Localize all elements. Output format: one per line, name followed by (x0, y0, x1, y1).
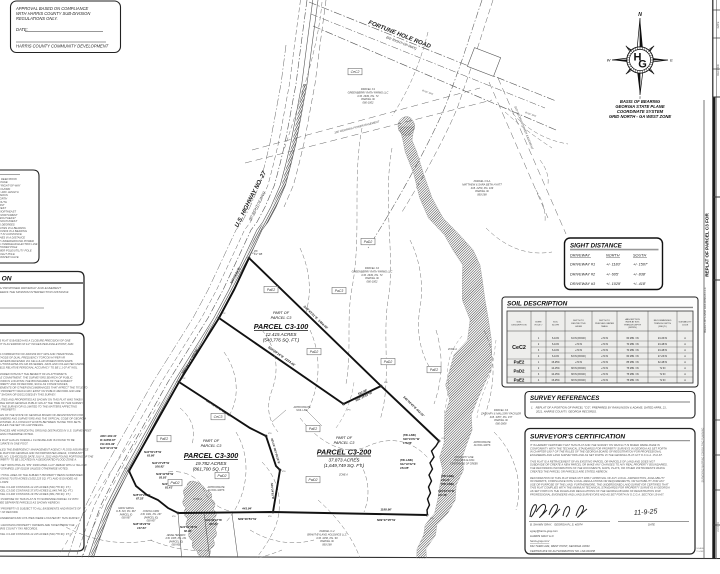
svg-text:DRIVEWAY #3: DRIVEWAY #3 (570, 282, 596, 286)
svg-text:D.B. 2250, PG. 109: D.B. 2250, PG. 109 (471, 186, 494, 190)
svg-text:+72 IN: +72 IN (575, 361, 582, 364)
svg-text:153.85': 153.85' (400, 466, 409, 470)
svg-text:(REQ'D): (REQ'D) (658, 326, 666, 328)
svg-text:CONTAINS 70.070 ACRES (3,052,2: CONTAINS 70.070 ACRES (3,052,225 SQ. FT.… (0, 476, 78, 480)
svg-text:CERTIFICATE OF AUTHORIZATION N: CERTIFICATE OF AUTHORIZATION NO. LSF-001… (530, 549, 596, 553)
svg-text:IPS: IPS (430, 518, 434, 520)
svg-text:THE PROPERTY IS SUBJECT TO ALL: THE PROPERTY IS SUBJECT TO ALL EASEMENTS… (0, 507, 81, 511)
svg-text:137.63': 137.63' (137, 526, 147, 530)
svg-text:D.B. 1939, PG. 72: D.B. 1939, PG. 72 (357, 94, 379, 98)
svg-text:+72 IN: +72 IN (601, 349, 608, 352)
svg-text:37.873 ACRES: 37.873 ACRES (329, 457, 361, 462)
svg-text:634 THIRD AVE, WEST POINT, GEO: 634 THIRD AVE, WEST POINT, GEORGIA 31833 (530, 544, 590, 548)
svg-text:TRENCH DEPTH: TRENCH DEPTH (624, 324, 642, 326)
svg-text:N34°34'31"W: N34°34'31"W (100, 446, 117, 450)
svg-text:THIS PLAT HAS AN OVERALL CLOSU: THIS PLAT HAS AN OVERALL CLOSURE AND IS … (0, 438, 75, 442)
svg-text:FOOT IN AN ERROR OF 1/2" INCHE: FOOT IN AN ERROR OF 1/2" INCHES PER ANGL… (0, 342, 73, 346)
svg-text:PARCEL C3-300: PARCEL C3-300 (184, 451, 238, 460)
svg-text:REPLAT OF PARCEL C3 FOR: REPLAT OF PARCEL C3 FOR (705, 213, 710, 277)
svg-text:6-10%: 6-10% (552, 343, 560, 346)
svg-text:GRID NORTH - GA WEST ZONE: GRID NORTH - GA WEST ZONE (609, 114, 672, 119)
svg-text:+72 IN: +72 IN (601, 343, 608, 346)
svg-text:ABSORPTION: ABSORPTION (625, 318, 640, 321)
svg-text:PARCEL C-2: PARCEL C-2 (319, 529, 335, 533)
svg-text:PaD2: PaD2 (364, 240, 373, 244)
svg-text:FLOOD LIMITS: FLOOD LIMITS (208, 489, 225, 492)
svg-text:DATE: DATE (716, 21, 720, 28)
svg-text:63.86': 63.86' (147, 454, 155, 458)
svg-text:(861,700 SQ. FT.): (861,700 SQ. FT.) (193, 467, 230, 472)
svg-text:GREENBERRY RATH FARMS LLC: GREENBERRY RATH FARMS LLC (352, 269, 393, 273)
svg-text:PARCEL C3-100: PARCEL C3-100 (254, 322, 308, 331)
svg-text:UNLESS OTHERWISE NOTED.: UNLESS OTHERWISE NOTED. (0, 432, 34, 436)
svg-text:60.96': 60.96' (184, 529, 192, 533)
svg-text:81.41': 81.41' (165, 486, 173, 490)
svg-text:101.48': 101.48' (438, 493, 447, 497)
svg-text:GREENBERRY RATH FARMS LLC: GREENBERRY RATH FARMS LLC (348, 90, 389, 94)
svg-text:NORTH: NORTH (606, 254, 620, 258)
svg-text:+/- 605': +/- 605' (606, 272, 619, 276)
svg-text:PARCEL ID: PARCEL ID (365, 276, 379, 280)
svg-text:NO UNDERGROUND UTILITIES WERE: NO UNDERGROUND UTILITIES WERE LOCATED BY… (0, 516, 80, 520)
svg-text:6-10%: 6-10% (552, 349, 560, 352)
svg-text:85 MIN / IN: 85 MIN / IN (626, 361, 638, 364)
svg-text:PaE2: PaE2 (514, 378, 525, 383)
svg-text:SOUTH: SOUTH (633, 254, 647, 258)
svg-text:SCALED THE EMERGENCY MANAGEMEN: SCALED THE EMERGENCY MANAGEMENT AGENCY F… (0, 448, 89, 452)
svg-text:PaD2: PaD2 (514, 369, 526, 374)
svg-text:060-907: 060-907 (147, 520, 156, 523)
svg-text:RATE MAP FOR GEORGIA AND INCOR: RATE MAP FOR GEORGIA AND INCORPORATED AR… (0, 451, 85, 455)
svg-text:72 IN: 72 IN (660, 373, 666, 376)
svg-text:EASEMENTS OR OTHER ENCUMBRANCE: EASEMENTS OR OTHER ENCUMBRANCES THAT AFF… (0, 386, 88, 390)
svg-text:HARRIS COUNTY COMMUNITY DEVELO: HARRIS COUNTY COMMUNITY DEVELOPMENT (16, 44, 109, 49)
svg-text:+/- 1183': +/- 1183' (606, 263, 621, 267)
svg-text:PARCEL C3-200 CONTAINS 37.873: PARCEL C3-200 CONTAINS 37.873 ACRES (1,6… (0, 488, 73, 492)
svg-text:ZACKARY & MALLORY FACKLER: ZACKARY & MALLORY FACKLER (480, 411, 521, 415)
svg-text:SOLUTIONS EPSILON GM RS SERIES: SOLUTIONS EPSILON GM RS SERIES. DATA AND… (0, 362, 84, 366)
svg-text:THREE SEPARATE PARCELS AS SHOW: THREE SEPARATE PARCELS AS SHOWN HEREON. (0, 500, 60, 504)
svg-text:1"=200': 1"=200' (696, 551, 704, 553)
svg-text:AND THE SURVEYOR IS LIMITED TO: AND THE SURVEYOR IS LIMITED TO THE MATTE… (0, 404, 77, 408)
svg-text:SOIL DESCRIPTION: SOIL DESCRIPTION (507, 301, 568, 308)
svg-text:10-15%: 10-15% (551, 367, 560, 370)
svg-text:THIS PLAT IS BASED HAS A CLOSU: THIS PLAT IS BASED HAS A CLOSURE PRECISI… (0, 339, 71, 343)
svg-text:75 MIN / IN: 75 MIN / IN (626, 379, 638, 382)
svg-text:CAP STAMPED LSF 001158 UNLESS: CAP STAMPED LSF 001158 UNLESS OTHERWISE … (0, 466, 69, 470)
svg-text:N: N (638, 12, 642, 18)
svg-text:PaD2: PaD2 (310, 350, 319, 354)
svg-text:60 MIN / IN: 60 MIN / IN (626, 355, 638, 358)
svg-text:+72 IN: +72 IN (601, 337, 608, 340)
svg-text:PaD2: PaD2 (384, 360, 393, 364)
svg-text:IPS: IPS (172, 516, 176, 518)
svg-text:+72 IN: +72 IN (601, 355, 608, 358)
svg-text:38 IN (ROCK): 38 IN (ROCK) (571, 373, 586, 376)
svg-text:UTILITIES AND PROPERTIES AS SH: UTILITIES AND PROPERTIES AS SHOWN ON THI… (0, 398, 82, 402)
svg-text:6-10%: 6-10% (552, 355, 560, 358)
svg-text:+72 IN: +72 IN (601, 367, 608, 370)
svg-text:BORE: BORE (535, 322, 542, 324)
svg-text:PART OF: PART OF (336, 436, 353, 440)
svg-text:THE ADJOINING PROPERTY OWNERS: THE ADJOINING PROPERTY OWNERS ARE TAKEN … (0, 523, 75, 527)
svg-text:PaC3: PaC3 (335, 289, 344, 293)
svg-text:ANNOTATED. IF A CONFLICT EXIST: ANNOTATED. IF A CONFLICT EXISTS BETWEEN … (0, 420, 81, 424)
svg-text:RECORD IN LOCATING THE BOUNDAR: RECORD IN LOCATING THE BOUNDARIES OF THE… (0, 379, 73, 383)
svg-text:HARRIS GRAY LLC: HARRIS GRAY LLC (530, 534, 554, 538)
svg-text:6-10%: 6-10% (552, 337, 560, 340)
svg-text:CENTERLINE OF CREEK: CENTERLINE OF CREEK (450, 462, 478, 465)
svg-text:+72 IN: +72 IN (575, 343, 582, 346)
svg-text:2021, HARRIS COUNTY, GEORGIA R: 2021, HARRIS COUNTY, GEORGIA RECORDS. (535, 409, 597, 413)
svg-text:PARCEL C4: PARCEL C4 (494, 408, 509, 412)
svg-text:PARCEL ID: PARCEL ID (494, 418, 508, 422)
svg-text:TRENCH DEPTH: TRENCH DEPTH (654, 323, 672, 325)
svg-text:RULES OF THE STATE OF GEORGIA: RULES OF THE STATE OF GEORGIA BOARD OF R… (0, 413, 83, 417)
svg-text:PARCEL C3-A: PARCEL C3-A (474, 179, 491, 183)
svg-text:PROPERTY AND OF RECORD, SUCH A: PROPERTY AND OF RECORD, SUCH AS CONVEYAN… (0, 382, 68, 386)
svg-text:23-33 IN: 23-33 IN (658, 337, 667, 340)
svg-text:HOLE #: HOLE # (535, 324, 544, 326)
svg-text:PaE2: PaE2 (430, 368, 438, 372)
svg-text:70 MIN / IN: 70 MIN / IN (626, 343, 638, 346)
svg-text:A FIELD RELATIVE PERSONAL ACCU: A FIELD RELATIVE PERSONAL ACCURACY TO BE… (0, 366, 78, 370)
svg-text:DRIVEWAY #2: DRIVEWAY #2 (570, 272, 596, 276)
svg-text:WAY OF RECORD.: WAY OF RECORD. (0, 510, 19, 514)
svg-text:PARCEL C3-100 CONTAINS 12.415: PARCEL C3-100 CONTAINS 12.415 ACRES (540… (0, 532, 71, 536)
svg-text:ACCURATE IN ONE FOOT.: ACCURATE IN ONE FOOT. (0, 441, 29, 445)
svg-text:harris-gray.com/: harris-gray.com/ (530, 539, 549, 543)
svg-text:12.415 ACRES: 12.415 ACRES (266, 332, 298, 337)
svg-text:DEPTH TO: DEPTH TO (599, 320, 610, 322)
svg-text:PARCEL C3: PARCEL C3 (334, 441, 356, 445)
svg-text:N89°36'53"W: N89°36'53"W (238, 517, 258, 521)
svg-text:DEPTH TO: DEPTH TO (573, 320, 584, 322)
svg-text:75 MIN / IN: 75 MIN / IN (626, 373, 638, 376)
svg-text:SURVEYING MAPPING CONSULTING P: SURVEYING MAPPING CONSULTING PLANNING (702, 427, 705, 482)
svg-text:FOLLOWS:: FOLLOWS: (0, 480, 9, 484)
svg-text:CREATED THE PARCEL OR PARCELS: CREATED THE PARCEL OR PARCELS ARE STATED… (530, 469, 608, 473)
svg-text:PaE2: PaE2 (514, 360, 525, 365)
svg-text:PwD2: PwD2 (308, 478, 317, 482)
svg-text:15-25%: 15-25% (551, 361, 560, 364)
svg-text:PARCEL C3-300 CONTAINS 19.782: PARCEL C3-300 CONTAINS 19.782 ACRES (861… (0, 492, 71, 496)
svg-text:PwD2: PwD2 (170, 481, 179, 485)
svg-text:060-906: 060-906 (172, 544, 181, 547)
svg-text:060-268: 060-268 (322, 543, 332, 547)
svg-text:DESCRIPTION: DESCRIPTION (512, 324, 527, 326)
svg-text:THE PROPERTY WHICH MAY EXIST O: THE PROPERTY WHICH MAY EXIST ON PUBLIC R… (0, 389, 81, 393)
svg-text:CeC2: CeC2 (512, 345, 526, 351)
svg-text:72 IN: 72 IN (660, 379, 666, 382)
svg-text:IPS: IPS (268, 516, 272, 518)
svg-text:SLOPE: SLOPE (552, 324, 560, 326)
svg-text:THE PROPERTY.: THE PROPERTY. (0, 408, 17, 412)
svg-text:72 IN: 72 IN (660, 367, 666, 370)
svg-text:38 IN (ROCK): 38 IN (ROCK) (571, 379, 586, 382)
svg-text:10-15%: 10-15% (551, 373, 560, 376)
svg-text:106.92': 106.92' (155, 465, 165, 469)
svg-text:(TIE-LINE): (TIE-LINE) (441, 482, 454, 486)
svg-text:FLOOD LIMITS: FLOOD LIMITS (474, 444, 491, 447)
svg-text:OF RULES THE SET OF LAW PREVAI: OF RULES THE SET OF LAW PREVAIL. (0, 423, 44, 427)
svg-text:DRIVEWAY: DRIVEWAY (570, 254, 590, 258)
svg-text:(540,776 SQ. FT.): (540,776 SQ. FT.) (263, 337, 300, 342)
svg-text:RECORD: RECORD (716, 64, 720, 75)
svg-text:S12°32'42"E: S12°32'42"E (400, 462, 416, 466)
svg-text:SURVEY REFERENCES: SURVEY REFERENCES (530, 395, 600, 402)
svg-text:1188.96': 1188.96' (380, 508, 392, 512)
svg-text:+72 IN: +72 IN (601, 361, 608, 364)
svg-text:PaE2: PaE2 (160, 437, 168, 441)
svg-text:PERCHED WATER: PERCHED WATER (595, 322, 614, 325)
svg-text:D.B. 4156, PG. 99: D.B. 4156, PG. 99 (316, 536, 338, 540)
svg-text:34 IN (ROCK): 34 IN (ROCK) (571, 337, 586, 340)
svg-text:E: E (670, 58, 673, 63)
svg-text:23-48 IN: 23-48 IN (658, 349, 667, 352)
svg-text:S03°19'34"W: S03°19'34"W (438, 489, 455, 493)
svg-text:IPS: IPS (268, 433, 272, 435)
svg-text:ZONE A: ZONE A (447, 348, 457, 351)
svg-text:PARCEL C1: PARCEL C1 (361, 87, 376, 91)
svg-text:+/- 418': +/- 418' (633, 282, 646, 286)
svg-text:BRANT-BYLAND HOLDINGS LLC: BRANT-BYLAND HOLDINGS LLC (307, 532, 347, 536)
svg-text:HARRIS COUNTY TAX RECORDS.: HARRIS COUNTY TAX RECORDS. (0, 526, 38, 530)
svg-text:AS A COMBINATION OF RAWINS RCT: AS A COMBINATION OF RAWINS RCT GPS AND T… (0, 352, 74, 356)
svg-text:PwD2: PwD2 (217, 474, 226, 478)
svg-text:+72 IN: +72 IN (601, 379, 608, 382)
svg-text:LAYER: LAYER (575, 325, 582, 328)
svg-text:PART OF: PART OF (203, 439, 220, 443)
svg-text:D.B. 3357, PG. 157: D.B. 3357, PG. 157 (490, 415, 513, 419)
svg-text:DATE: DATE (648, 523, 655, 527)
svg-text:BRANT-BYLAND HOLDINGS LLC: BRANT-BYLAND HOLDINGS LLC (703, 286, 707, 333)
svg-text:SUITABILITY: SUITABILITY (679, 321, 693, 324)
svg-text:+/- 1507': +/- 1507' (633, 263, 648, 267)
svg-text:D.B. 1939, PG. 72: D.B. 1939, PG. 72 (361, 273, 383, 277)
svg-text:60 MIN / IN: 60 MIN / IN (626, 337, 638, 340)
svg-text:SOIL LINE: SOIL LINE (296, 409, 308, 412)
svg-text:15-25%: 15-25% (551, 379, 560, 382)
svg-text:THE SET IRON PINS AS "IPS" IND: THE SET IRON PINS AS "IPS" INDICATED A 1… (0, 463, 87, 467)
svg-text:PARCEL C3: PARCEL C3 (201, 444, 223, 448)
svg-text:ENGINEERS AND SURVEYORS AND TH: ENGINEERS AND SURVEYORS AND THE OFFICIAL… (0, 416, 86, 420)
svg-text:SIGHT DISTANCE: SIGHT DISTANCE (570, 243, 623, 250)
svg-text:+/- 1029': +/- 1029' (606, 282, 621, 286)
svg-text:32-48 IN: 32-48 IN (658, 361, 667, 364)
svg-text:PANEL NO. 13145C0110D DATE JUL: PANEL NO. 13145C0110D DATE JULY 8, 2012 … (0, 454, 94, 458)
svg-text:RECOMMENDED: RECOMMENDED (654, 320, 672, 322)
svg-text:060-268: 060-268 (477, 193, 487, 197)
svg-text:ZONE A: ZONE A (338, 474, 348, 477)
svg-text:CODE: CODE (682, 324, 689, 326)
svg-text:060-567: 060-567 (122, 517, 131, 520)
svg-text:S30°01'01"W: S30°01'01"W (403, 437, 420, 441)
svg-text:REGULATIONS ONLY.: REGULATIONS ONLY. (16, 16, 58, 21)
svg-text:SOIL: SOIL (553, 322, 559, 324)
svg-text:23-48 IN: 23-48 IN (658, 343, 667, 346)
svg-text:+/- 838': +/- 838' (633, 272, 646, 276)
svg-text:SURVEYOR'S CERTIFICATION: SURVEYOR'S CERTIFICATION (530, 434, 625, 441)
svg-text:B. SHAWN GRAY, GEORGIA P.L.S: B. SHAWN GRAY, GEORGIA P.L.S. #2974 (530, 523, 583, 527)
svg-text:19.782 ACRES: 19.782 ACRES (196, 461, 228, 466)
svg-text:MATTHEW & SARA BETH HYATT: MATTHEW & SARA BETH HYATT (462, 182, 502, 186)
svg-text:2 2 0 9 8: 2 2 0 9 8 (717, 522, 720, 532)
svg-text:67.25': 67.25' (136, 497, 144, 501)
svg-text:PROFESSIONAL ENGINEERS AND LAN: PROFESSIONAL ENGINEERS AND LAND SURVEYOR… (530, 492, 665, 496)
svg-text:PARCEL C2: PARCEL C2 (365, 266, 380, 270)
svg-text:PARCEL C3-200: PARCEL C3-200 (317, 448, 371, 457)
svg-text:DRIVEWAY #1: DRIVEWAY #1 (570, 263, 595, 267)
svg-text:PARCEL ID: PARCEL ID (475, 189, 489, 193)
svg-text:N89°37'35"W: N89°37'35"W (377, 518, 397, 522)
svg-text:(TIE-LINE): (TIE-LINE) (403, 433, 416, 437)
svg-text:CeC2: CeC2 (351, 70, 360, 74)
svg-text:sgray@harris-gray.com: sgray@harris-gray.com (530, 529, 559, 533)
svg-text:IPS: IPS (442, 438, 446, 440)
svg-text:G: G (638, 59, 647, 71)
svg-text:ENGINEERS AND LAND SURVEYORS A: ENGINEERS AND LAND SURVEYORS AND AS SET … (530, 453, 663, 457)
svg-text:(TIE-LINE): (TIE-LINE) (441, 474, 454, 478)
svg-text:+72 IN: +72 IN (601, 373, 608, 376)
svg-text:NOT SHOWN OR DISCLOSED BY THIS: NOT SHOWN OR DISCLOSED BY THIS SURVEY. (0, 392, 56, 396)
svg-text:PART OF: PART OF (273, 311, 290, 315)
svg-text:EXCEEDS THE MINIMUM INTERSECTI: EXCEEDS THE MINIMUM INTERSECTION DISTANC… (0, 290, 69, 294)
svg-text:TITLE COMMITMENT. THE SURVEYOR: TITLE COMMITMENT. THE SURVEYORS SEARCH O… (0, 375, 73, 379)
svg-text:38 IN (ROCK): 38 IN (ROCK) (571, 367, 586, 370)
svg-text:(1,649,749 SQ. FT.): (1,649,749 SQ. FT.) (324, 463, 365, 468)
svg-text:367.83': 367.83' (209, 522, 219, 526)
svg-text:PaE2: PaE2 (267, 288, 275, 292)
svg-text:93.93': 93.93' (159, 476, 167, 480)
svg-text:DISTANCES ARE HORIZONTAL GROUN: DISTANCES ARE HORIZONTAL GROUND DISTANCE… (0, 429, 92, 433)
svg-text:SCALE: SCALE (696, 547, 704, 550)
svg-text:27-23 IN: 27-23 IN (658, 355, 667, 358)
svg-text:IPS: IPS (282, 471, 286, 473)
svg-text:+72 IN: +72 IN (575, 349, 582, 352)
svg-text:RECEIVERS RECEIVED VIA CELLULA: RECEIVERS RECEIVED VIA CELLULAR MODEM FR… (0, 359, 73, 363)
svg-text:THE PURPOSE OF THIS PLAT IS TO: THE PURPOSE OF THIS PLAT IS TO SUBDIVIDE… (0, 497, 79, 501)
svg-text:PROPERTY TO BE LOCATED IN A DE: PROPERTY TO BE LOCATED IN A DESIGNATED F… (0, 458, 77, 462)
svg-text:PARCEL ID: PARCEL ID (361, 97, 375, 101)
svg-text:IPS: IPS (384, 382, 388, 384)
svg-text:SOIL: SOIL (517, 322, 523, 324)
svg-text:RESTRICTIVE: RESTRICTIVE (571, 323, 586, 325)
svg-text:70 MIN / IN: 70 MIN / IN (626, 349, 638, 352)
svg-text:TABLE: TABLE (601, 325, 608, 328)
svg-text:CeC3: CeC3 (214, 415, 223, 419)
svg-text:63 IN (ROCK): 63 IN (ROCK) (571, 355, 586, 358)
svg-text:060-2608: 060-2608 (496, 422, 508, 426)
svg-text:175.56': 175.56' (403, 441, 412, 445)
svg-text:443.84': 443.84' (241, 507, 252, 511)
svg-text:WV WATER VALVE: WV WATER VALVE (0, 255, 19, 259)
svg-text:PaE2: PaE2 (309, 427, 317, 431)
svg-text:THE TOTAL AREA OF THE SUBJECT: THE TOTAL AREA OF THE SUBJECT PROPERTY B… (0, 473, 83, 477)
svg-text:PREPARED WITHOUT THE BENEFIT O: PREPARED WITHOUT THE BENEFIT OF AN ATTOR… (0, 372, 67, 376)
svg-text:ON: ON (2, 276, 12, 283)
svg-text:PARCEL ID: PARCEL ID (320, 539, 334, 543)
svg-text:136.21': 136.21' (441, 478, 450, 482)
svg-text:METHODS OF DUAL FREQUENCY TOPC: METHODS OF DUAL FREQUENCY TOPCON HYPER V… (0, 355, 65, 359)
svg-text:RATE AT 80%: RATE AT 80% (626, 321, 640, 324)
svg-text:(MPI/IN): (MPI/IN) (628, 327, 636, 329)
svg-text:060-1002: 060-1002 (363, 101, 375, 105)
svg-text:(TIE-LINE): (TIE-LINE) (400, 458, 413, 462)
svg-text:060-1002: 060-1002 (367, 280, 379, 284)
svg-text:IPS: IPS (347, 410, 351, 412)
svg-text:PARCEL C3-100 CONTAINS 12.415: PARCEL C3-100 CONTAINS 12.415 ACRES (540… (0, 485, 71, 489)
svg-text:PARCEL C3: PARCEL C3 (271, 316, 293, 320)
svg-text:ZONE A: ZONE A (192, 498, 202, 501)
svg-text:VISIBLE FROM GEORGIA PUBLIC GI: VISIBLE FROM GEORGIA PUBLIC GIS AT THE T… (0, 401, 83, 405)
svg-text:75 MIN / IN: 75 MIN / IN (626, 367, 638, 370)
